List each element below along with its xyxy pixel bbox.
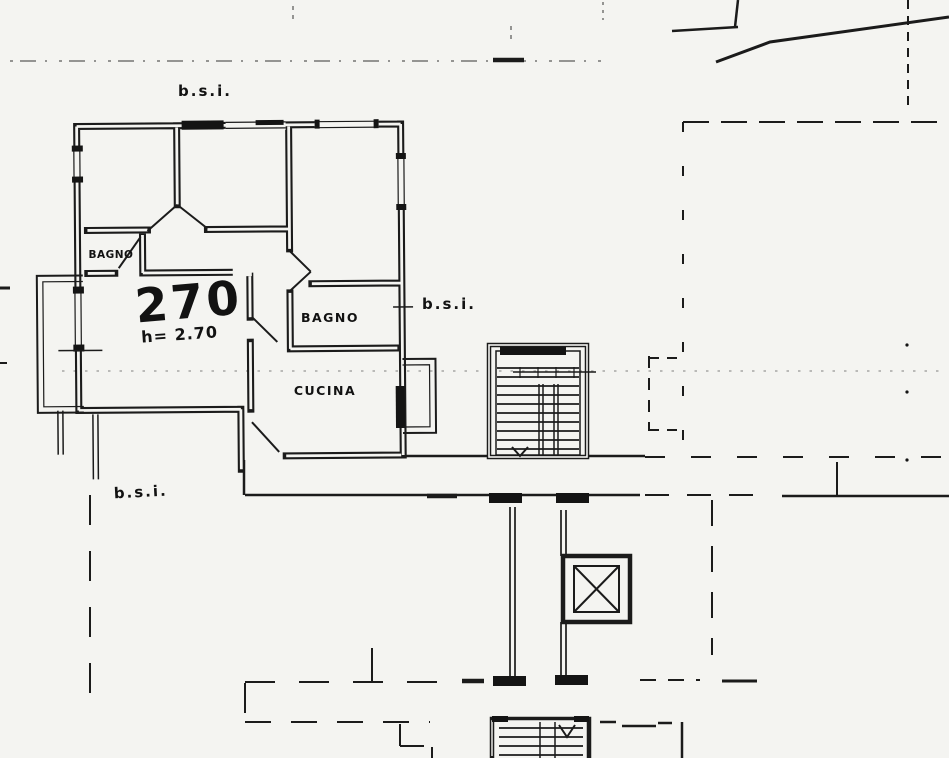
label-bathroom-main: BAGNO — [301, 310, 359, 325]
label-ceiling-height: h= 2.70 — [141, 322, 219, 346]
balcony-door — [396, 386, 405, 428]
plan-labels: b.s.i. b.s.i. b.s.i. BAGNO BAGNO CUCINA … — [89, 82, 476, 502]
floor-plan-scan: b.s.i. b.s.i. b.s.i. BAGNO BAGNO CUCINA … — [0, 0, 949, 758]
staircase-upper — [489, 345, 596, 457]
corridor — [244, 456, 949, 497]
wall-stubs — [58, 410, 99, 479]
label-bsi-middle: b.s.i. — [422, 295, 476, 313]
pillar-left — [510, 507, 515, 676]
label-bsi-top: b.s.i. — [178, 82, 232, 100]
elevator-x — [574, 566, 619, 612]
window-sill — [182, 120, 224, 129]
adjacent-roof-lines — [672, 0, 949, 122]
label-bsi-bottom: b.s.i. — [113, 482, 168, 503]
stair-treads — [497, 368, 579, 449]
elevator-shaft — [489, 493, 630, 686]
entrance-door — [252, 422, 279, 452]
label-bathroom-small: BAGNO — [89, 249, 134, 261]
stair-arrow — [559, 725, 575, 737]
staircase-lower — [492, 716, 589, 758]
right-balcony — [402, 359, 436, 433]
label-kitchen: CUCINA — [294, 383, 356, 398]
floor-plan-drawing: b.s.i. b.s.i. b.s.i. BAGNO BAGNO CUCINA … — [0, 0, 949, 758]
